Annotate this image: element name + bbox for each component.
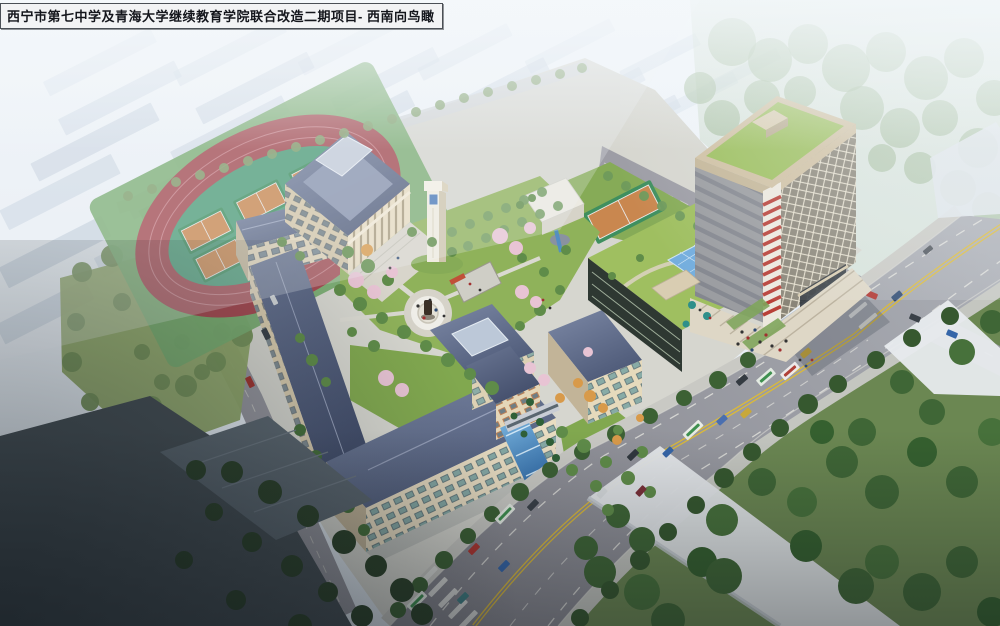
people-dot xyxy=(753,328,756,331)
people-dot xyxy=(736,342,739,345)
people-dot xyxy=(542,299,545,302)
people-dot xyxy=(746,336,749,339)
rendering-canvas xyxy=(0,0,1000,626)
people-dot xyxy=(778,348,781,351)
vignette-bottom-left xyxy=(0,240,540,626)
street-nw-dot xyxy=(709,371,727,389)
people-dot xyxy=(764,333,767,336)
people-dot xyxy=(549,307,552,310)
autumn-trees-dot xyxy=(636,414,644,422)
view-title-bar: 西宁市第七中学及青海大学继续教育学院联合改造二期项目- 西南向鸟瞰 xyxy=(0,3,443,29)
people-dot xyxy=(799,359,802,362)
people-dot xyxy=(770,344,773,347)
street-nw-dot xyxy=(740,352,756,368)
cherry-trees-dot xyxy=(583,347,593,357)
street-nw-dot xyxy=(642,408,658,424)
street-se-dot xyxy=(829,375,847,393)
campus-trees-dot xyxy=(555,285,565,295)
trees-ne-dot xyxy=(603,171,613,181)
park-trees-dot xyxy=(949,339,975,365)
people-dot xyxy=(740,330,743,333)
people-dot xyxy=(805,365,808,368)
people-dot xyxy=(811,359,814,362)
view-title-text: 西宁市第七中学及青海大学继续教育学院联合改造二期项目- 西南向鸟瞰 xyxy=(7,9,434,24)
people-dot xyxy=(709,317,712,320)
street-nw-dot xyxy=(676,390,692,406)
people-dot xyxy=(784,339,787,342)
umbrellas-dot xyxy=(688,301,696,309)
haze-top-right xyxy=(620,0,1000,300)
park-trees-dot xyxy=(919,399,945,425)
people-dot xyxy=(699,309,702,312)
street-se-dot xyxy=(798,394,818,414)
people-dot xyxy=(758,340,761,343)
street-se-dot xyxy=(941,307,959,325)
autumn-trees-dot xyxy=(573,378,583,388)
umbrellas-dot xyxy=(683,321,690,328)
people-dot xyxy=(750,348,753,351)
architectural-rendering: 西宁市第七中学及青海大学继续教育学院联合改造二期项目- 西南向鸟瞰 xyxy=(0,0,1000,626)
street-se-dot xyxy=(903,329,921,347)
autumn-trees-dot xyxy=(584,390,596,402)
campus-trees-dot xyxy=(608,272,616,280)
autumn-trees-dot xyxy=(598,403,608,413)
campus-trees-dot xyxy=(561,245,571,255)
park-trees-dot xyxy=(890,370,914,394)
street-se-dot xyxy=(867,351,885,369)
autumn-trees-dot xyxy=(555,393,565,403)
campus-trees-dot xyxy=(539,267,549,277)
